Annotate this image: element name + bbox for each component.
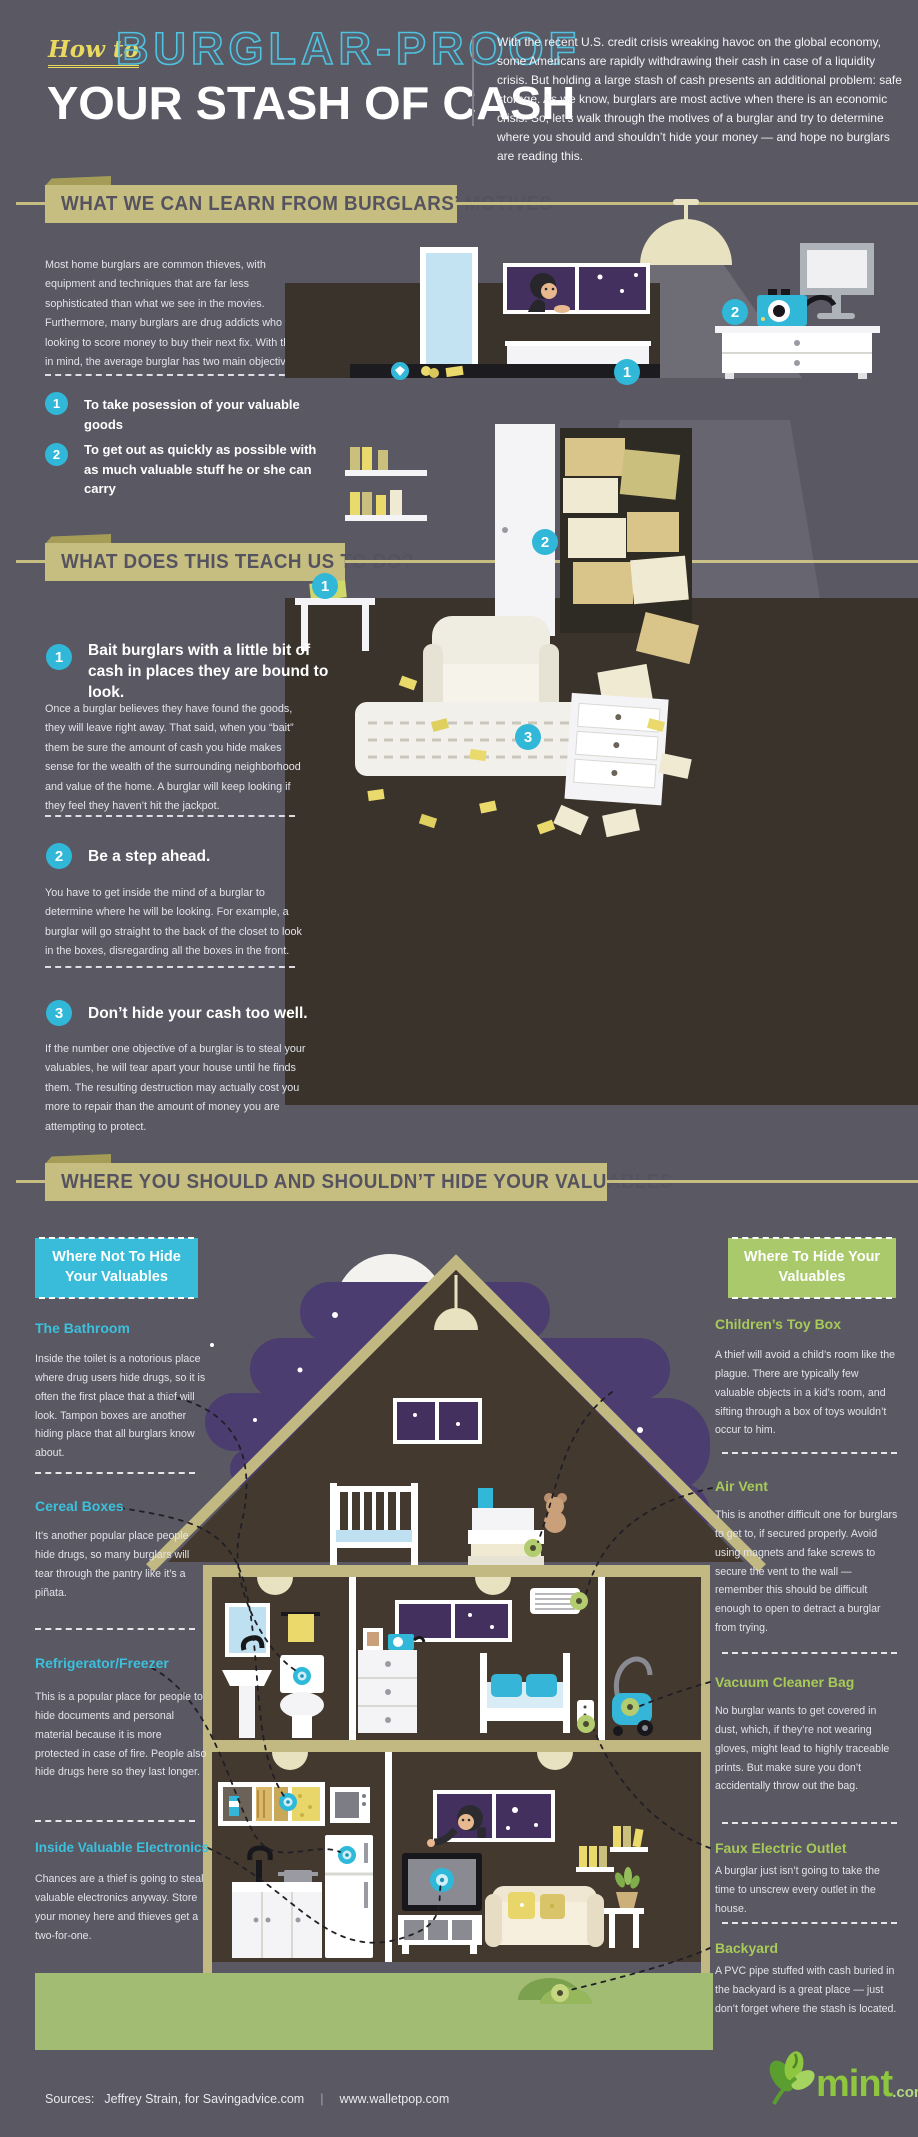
microwave-icon (330, 1787, 370, 1823)
desk-top (715, 326, 880, 333)
star (506, 1826, 510, 1830)
attic-window-mullion (435, 1400, 439, 1442)
hide-item-outlet-heading: Faux Electric Outlet (715, 1840, 846, 1856)
search-marker-2: 2 (532, 529, 558, 555)
dashed-separator (35, 1472, 195, 1474)
diamond-icon (391, 362, 409, 380)
marker-vacuum (621, 1698, 639, 1716)
not-item-cereal-body: It’s another popular place people hide d… (35, 1527, 207, 1602)
tip-3-badge: 3 (46, 1000, 72, 1026)
sources-line: Sources: Jeffrey Strain, for Savingadvic… (45, 2092, 449, 2106)
header-intro: With the recent U.S. credit crisis wreak… (497, 33, 907, 166)
tip-3-body: If the number one objective of a burglar… (45, 1040, 307, 1137)
house-wall-right (701, 1565, 710, 1973)
section-title-where: WHERE YOU SHOULD AND SHOULDN’T HIDE YOUR… (45, 1163, 607, 1201)
source-separator: | (320, 2092, 323, 2106)
living-room-illustration: 1 2 (0, 165, 918, 390)
window-mullion (575, 265, 579, 312)
room-marker-2: 2 (722, 299, 748, 325)
marker-outlet (577, 1715, 595, 1733)
marker-cereal (279, 1793, 297, 1811)
dashed-separator (45, 815, 295, 817)
marker-air-vent (570, 1592, 588, 1610)
star (598, 275, 603, 280)
marker-toy-box (524, 1539, 542, 1557)
tip-2-badge: 2 (46, 843, 72, 869)
lamp-shade-icon (640, 219, 732, 265)
header-divider (472, 36, 474, 126)
armchair-icon (423, 616, 559, 710)
svg-text:3: 3 (524, 729, 532, 746)
sources-label: Sources: (45, 2092, 94, 2106)
star (634, 273, 638, 277)
console-top (505, 341, 651, 346)
room-marker-1: 1 (614, 359, 640, 385)
dashed-separator (722, 1922, 897, 1924)
mint-logo[interactable]: mint .com (760, 2040, 918, 2106)
where-hide-box: Where To Hide Your Valuables (728, 1238, 896, 1298)
tip-3-heading: Don’t hide your cash too well. (88, 1004, 343, 1025)
not-item-cereal-heading: Cereal Boxes (35, 1498, 124, 1514)
dashed-separator (722, 1822, 897, 1824)
where-not-box: Where Not To Hide Your Valuables (35, 1238, 198, 1298)
where-not-box-label: Where Not To Hide Your Valuables (39, 1237, 194, 1298)
marker-fridge (338, 1846, 356, 1864)
livingroom-window-mullion (492, 1792, 496, 1840)
star (534, 1823, 538, 1827)
floor-divider (205, 1740, 710, 1752)
not-item-fridge-heading: Refrigerator/Freezer (35, 1655, 169, 1671)
hide-item-airvent-heading: Air Vent (715, 1478, 768, 1494)
star (490, 1625, 494, 1629)
backyard-ground (35, 1973, 713, 2050)
hide-item-backyard-body: A PVC pipe stuffed with cash buried in t… (715, 1962, 900, 2019)
star (620, 289, 624, 293)
search-marker-3: 3 (515, 724, 541, 750)
dresser-icon (564, 693, 668, 806)
hide-item-toybox-body: A thief will avoid a child’s room like t… (715, 1346, 900, 1440)
tip-1-body: Once a burglar believes they have found … (45, 700, 307, 817)
not-item-fridge-body: This is a popular place for people to hi… (35, 1688, 207, 1782)
svg-text:1: 1 (321, 578, 329, 595)
dashed-separator (722, 1652, 897, 1654)
attic-floor (205, 1565, 710, 1577)
source-walletpop[interactable]: www.walletpop.com (339, 2092, 449, 2106)
interior-wall (385, 1752, 392, 1962)
mint-leaf-icon (760, 2040, 816, 2106)
hide-item-toybox-heading: Children’s Toy Box (715, 1316, 841, 1332)
bedroom-window-mullion (451, 1602, 455, 1640)
mint-suffix: .com (892, 2084, 918, 2106)
hide-item-outlet-body: A burglar just isn’t going to take the t… (715, 1862, 900, 1919)
objective-1-badge: 1 (45, 392, 68, 415)
svg-text:2: 2 (541, 534, 549, 551)
interior-wall (598, 1577, 605, 1740)
dashed-separator (35, 1820, 195, 1822)
not-item-bathroom-body: Inside the toilet is a notorious place w… (35, 1350, 207, 1463)
bookshelf-icon (345, 447, 427, 521)
tip-2-heading: Be a step ahead. (88, 847, 343, 868)
hide-item-vacuum-body: No burglar wants to get covered in dust,… (715, 1702, 900, 1796)
search-marker-1: 1 (312, 573, 338, 599)
where-hide-box-label: Where To Hide Your Valuables (732, 1237, 892, 1298)
kitchen-cabinet-icon (218, 1782, 325, 1826)
dashed-separator (45, 966, 295, 968)
hide-item-airvent-body: This is another difficult one for burgla… (715, 1506, 900, 1638)
svg-text:2: 2 (731, 304, 739, 321)
hide-item-vacuum-heading: Vacuum Cleaner Bag (715, 1674, 854, 1690)
computer-monitor-icon (800, 243, 874, 319)
dashed-separator (722, 1452, 897, 1454)
source-savingadvice[interactable]: Jeffrey Strain, for Savingadvice.com (104, 2092, 304, 2106)
banner-tick (16, 1180, 45, 1183)
drawer-knob (794, 340, 800, 346)
not-item-electronics-body: Chances are a thief is going to steal va… (35, 1870, 207, 1945)
mint-wordmark: mint (816, 2063, 892, 2106)
door-glass (426, 253, 472, 378)
star (413, 1413, 417, 1417)
desk-leg (725, 373, 734, 379)
not-item-electronics-heading: Inside Valuable Electronics (35, 1840, 209, 1855)
tip-1-badge: 1 (46, 644, 72, 670)
interior-wall (349, 1577, 356, 1740)
desk-leg (858, 373, 867, 379)
not-item-bathroom-heading: The Bathroom (35, 1320, 130, 1336)
svg-text:1: 1 (623, 364, 631, 381)
tip-2-body: You have to get inside the mind of a bur… (45, 884, 307, 962)
marker-backyard (551, 1984, 569, 2002)
banner-line (607, 1180, 918, 1183)
infographic-page: How to BURGLAR-PROOF YOUR STASH OF CASH … (0, 0, 918, 2137)
hide-item-backyard-heading: Backyard (715, 1940, 778, 1956)
star (468, 1613, 472, 1617)
star (512, 1807, 518, 1813)
section-title-where-text: WHERE YOU SHOULD AND SHOULDN’T HIDE YOUR… (61, 1171, 673, 1194)
dashed-separator (35, 1628, 195, 1630)
drawer-knob (794, 360, 800, 366)
sofa-icon (485, 1886, 604, 1947)
star (456, 1422, 460, 1426)
marker-tv (430, 1868, 454, 1892)
tip-1-heading: Bait burglars with a little bit of cash … (88, 641, 343, 704)
